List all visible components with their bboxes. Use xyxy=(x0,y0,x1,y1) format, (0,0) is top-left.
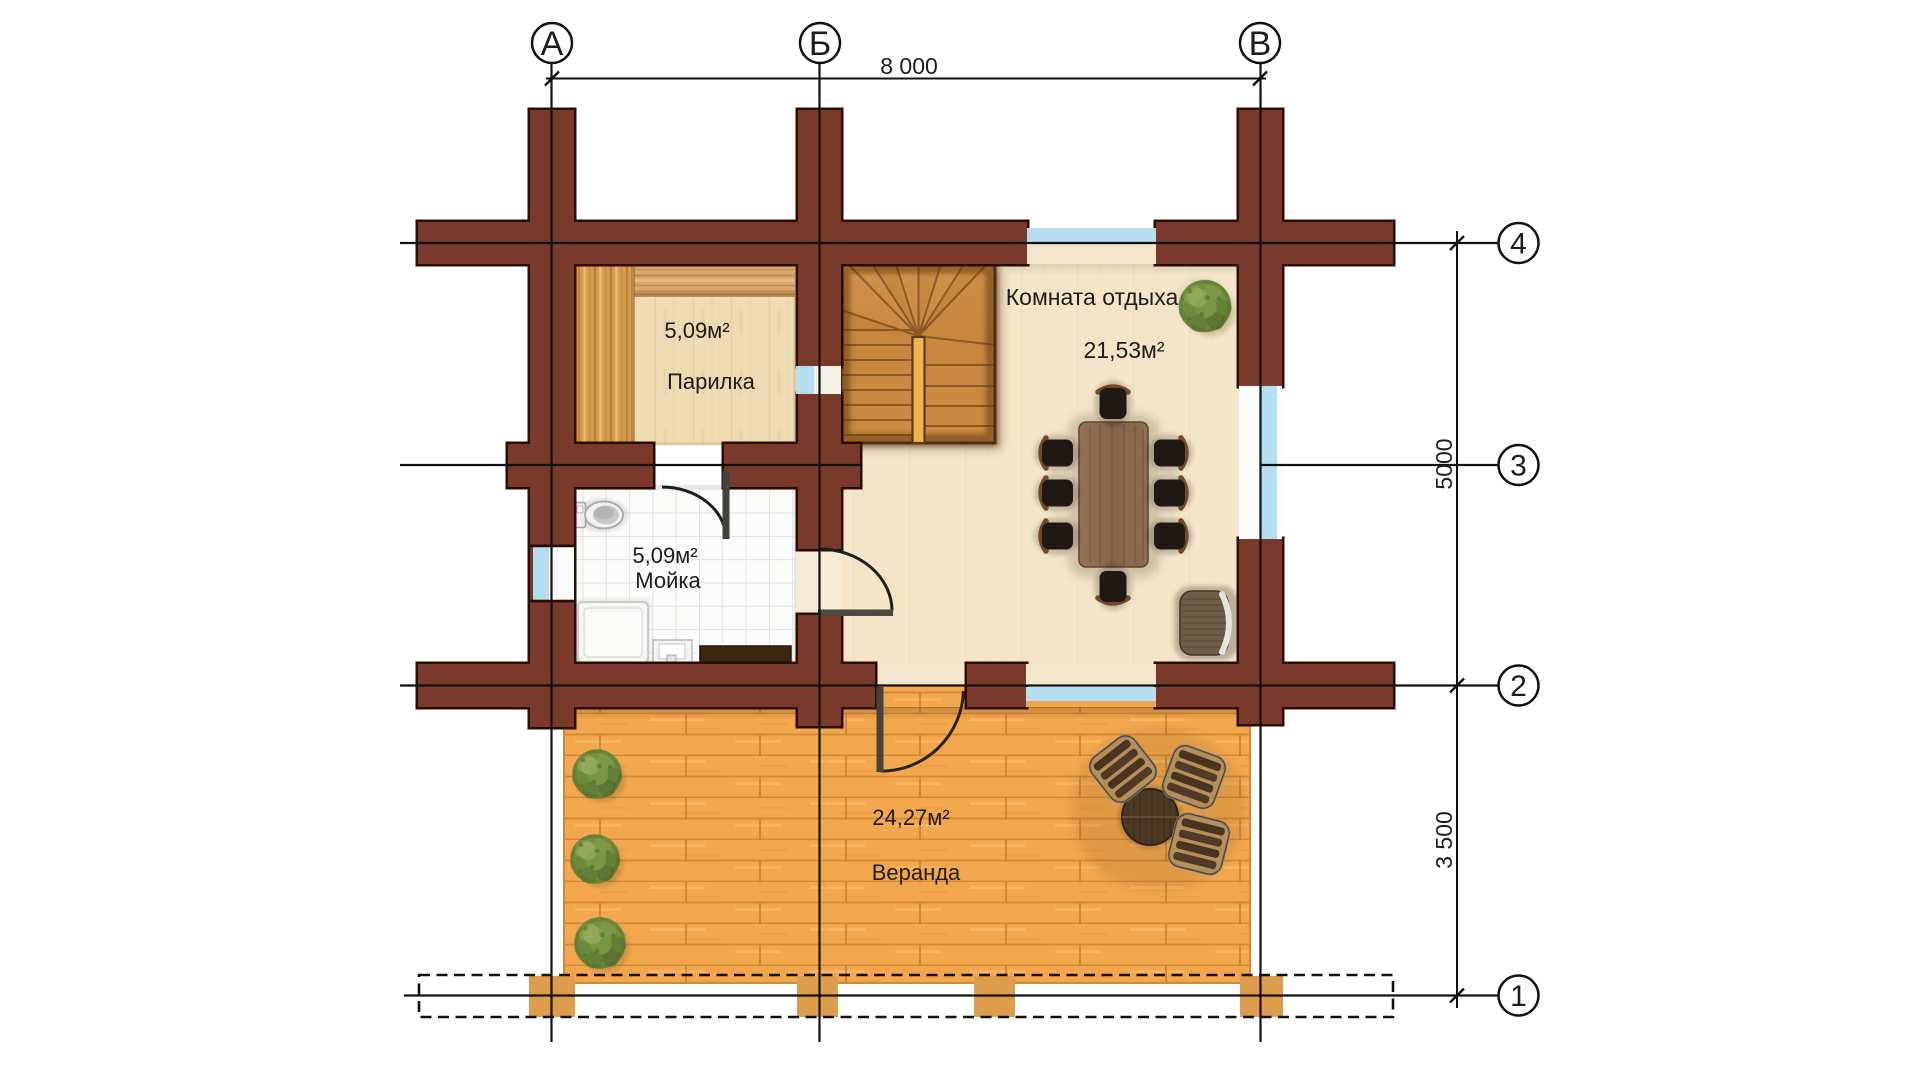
svg-text:Б: Б xyxy=(809,25,831,63)
svg-text:24,27м²: 24,27м² xyxy=(872,805,950,830)
svg-text:Парилка: Парилка xyxy=(667,369,756,394)
svg-text:3: 3 xyxy=(1510,450,1527,483)
svg-text:21,53м²: 21,53м² xyxy=(1083,337,1164,363)
svg-text:3 500: 3 500 xyxy=(1431,811,1457,869)
svg-text:Комната отдыха: Комната отдыха xyxy=(1006,284,1179,310)
svg-text:В: В xyxy=(1249,25,1272,63)
svg-text:8 000: 8 000 xyxy=(880,53,938,79)
svg-text:2: 2 xyxy=(1510,670,1527,703)
svg-text:5,09м²: 5,09м² xyxy=(664,318,729,343)
svg-text:1: 1 xyxy=(1510,980,1527,1013)
svg-text:5,09м²: 5,09м² xyxy=(632,543,697,568)
svg-text:А: А xyxy=(541,25,564,63)
svg-text:4: 4 xyxy=(1510,228,1527,261)
svg-text:Мойка: Мойка xyxy=(635,568,701,593)
svg-text:Веранда: Веранда xyxy=(872,860,961,885)
svg-text:5000: 5000 xyxy=(1431,438,1457,489)
